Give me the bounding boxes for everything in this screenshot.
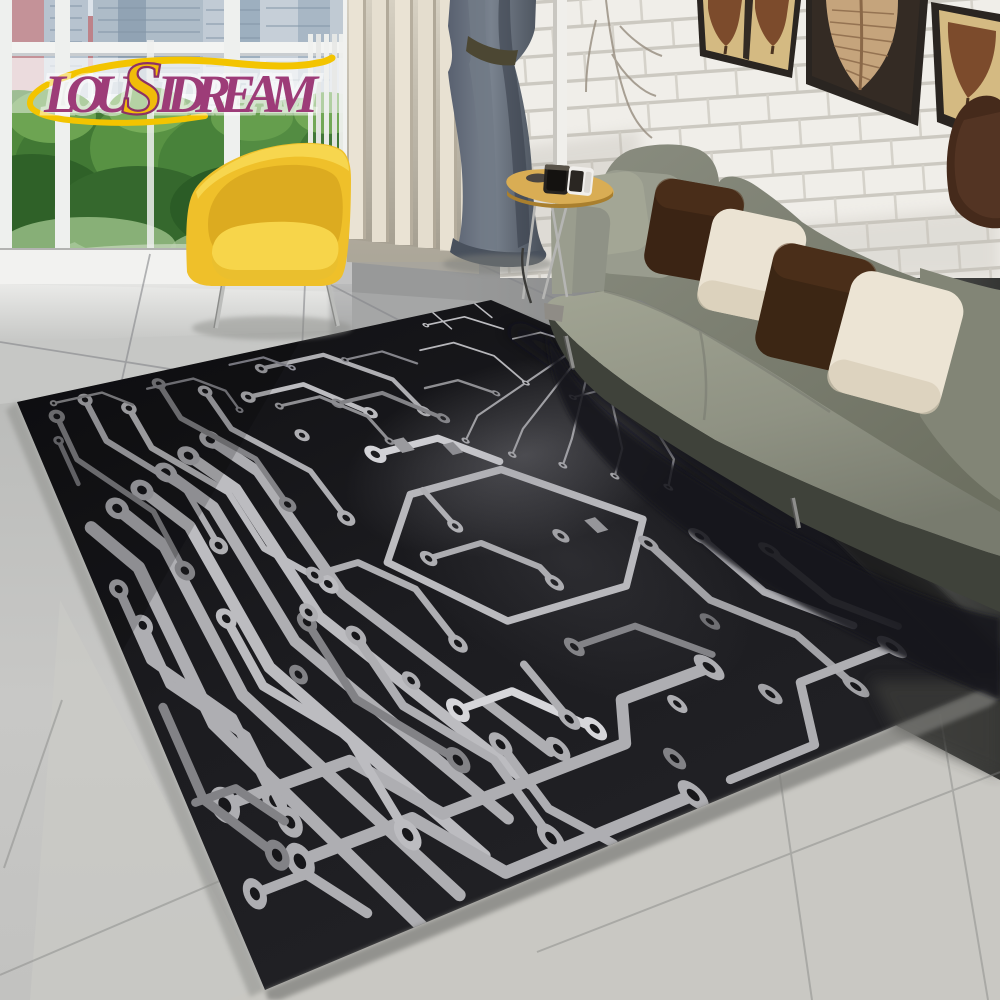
svg-text:S: S: [121, 47, 163, 131]
svg-text:IDREAM: IDREAM: [156, 64, 320, 124]
